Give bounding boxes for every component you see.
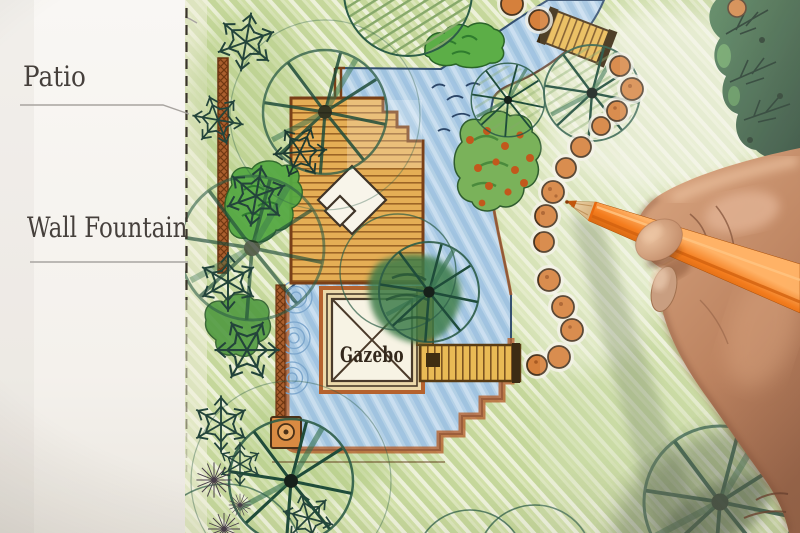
label-patio: Patio [23, 60, 86, 93]
photo-vignette [0, 0, 800, 533]
photo-landscape-plan: Gazebo Patio Wall Fountain [0, 0, 800, 533]
label-wall-fountain: Wall Fountain [27, 211, 187, 244]
plan-drawing: Gazebo [0, 0, 800, 533]
